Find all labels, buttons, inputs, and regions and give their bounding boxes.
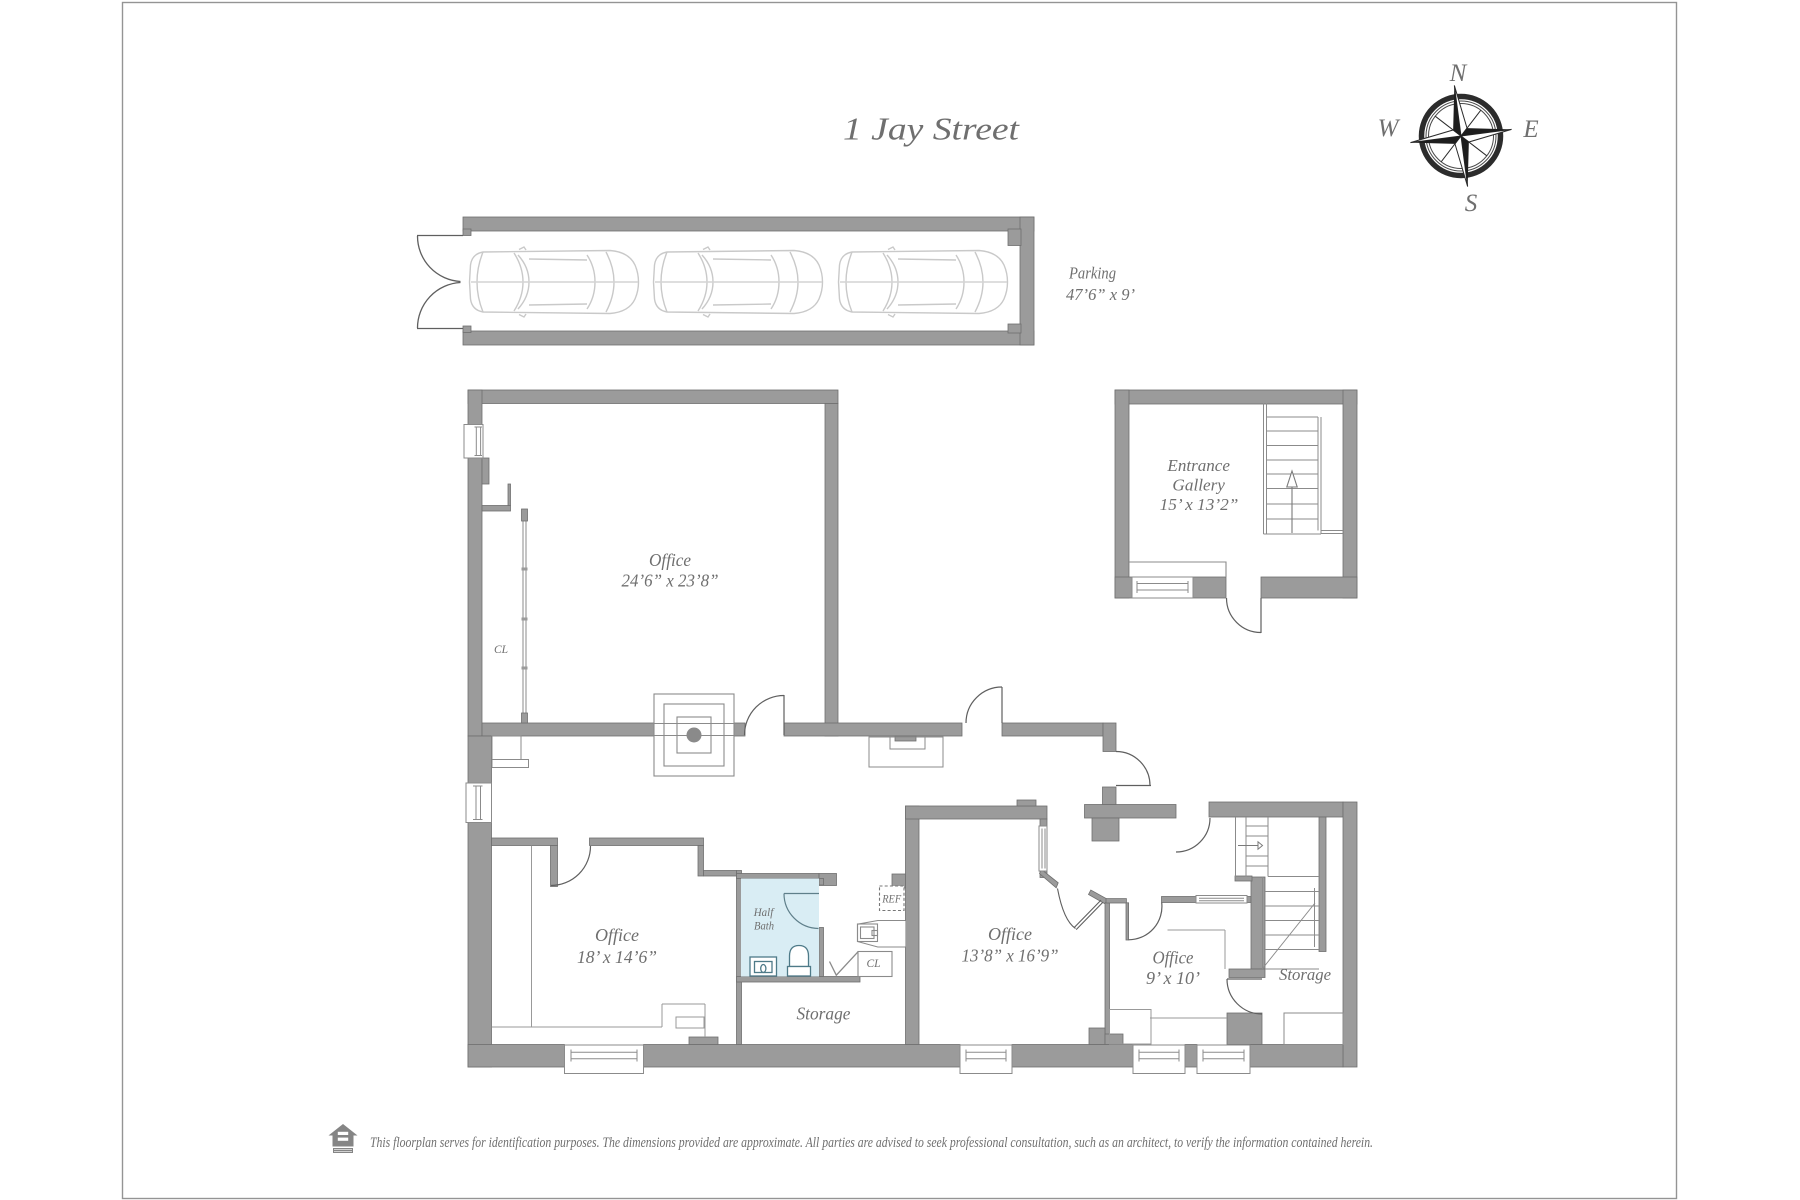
svg-text:13’8” x 16’9”: 13’8” x 16’9” [962, 946, 1059, 966]
svg-text:N: N [1449, 60, 1468, 87]
svg-text:CL: CL [866, 958, 880, 970]
svg-text:CL: CL [494, 644, 508, 656]
svg-text:Storage: Storage [797, 1004, 851, 1024]
svg-text:47’6” x 9’: 47’6” x 9’ [1066, 285, 1135, 304]
svg-text:Office: Office [1153, 948, 1194, 968]
svg-text:Parking: Parking [1068, 264, 1116, 283]
svg-text:Office: Office [988, 924, 1032, 944]
svg-text:24’6” x 23’8”: 24’6” x 23’8” [622, 571, 719, 591]
svg-text:REF: REF [881, 894, 902, 906]
svg-text:This floorplan serves for iden: This floorplan serves for identification… [370, 1135, 1373, 1151]
svg-text:Office: Office [649, 550, 691, 570]
svg-text:W: W [1378, 115, 1401, 142]
svg-text:18’ x 14’6”: 18’ x 14’6” [577, 947, 657, 967]
svg-text:Half: Half [753, 905, 775, 919]
svg-text:Office: Office [595, 925, 639, 945]
svg-text:E: E [1522, 116, 1538, 143]
svg-text:S: S [1465, 190, 1478, 217]
svg-text:Storage: Storage [1279, 965, 1331, 984]
svg-text:Gallery: Gallery [1172, 476, 1225, 495]
svg-text:9’ x 10’: 9’ x 10’ [1146, 968, 1200, 988]
svg-text:Bath: Bath [754, 919, 774, 933]
svg-text:Entrance: Entrance [1166, 456, 1230, 475]
svg-text:15’ x 13’2”: 15’ x 13’2” [1160, 495, 1239, 514]
svg-text:1 Jay Street: 1 Jay Street [843, 111, 1020, 147]
